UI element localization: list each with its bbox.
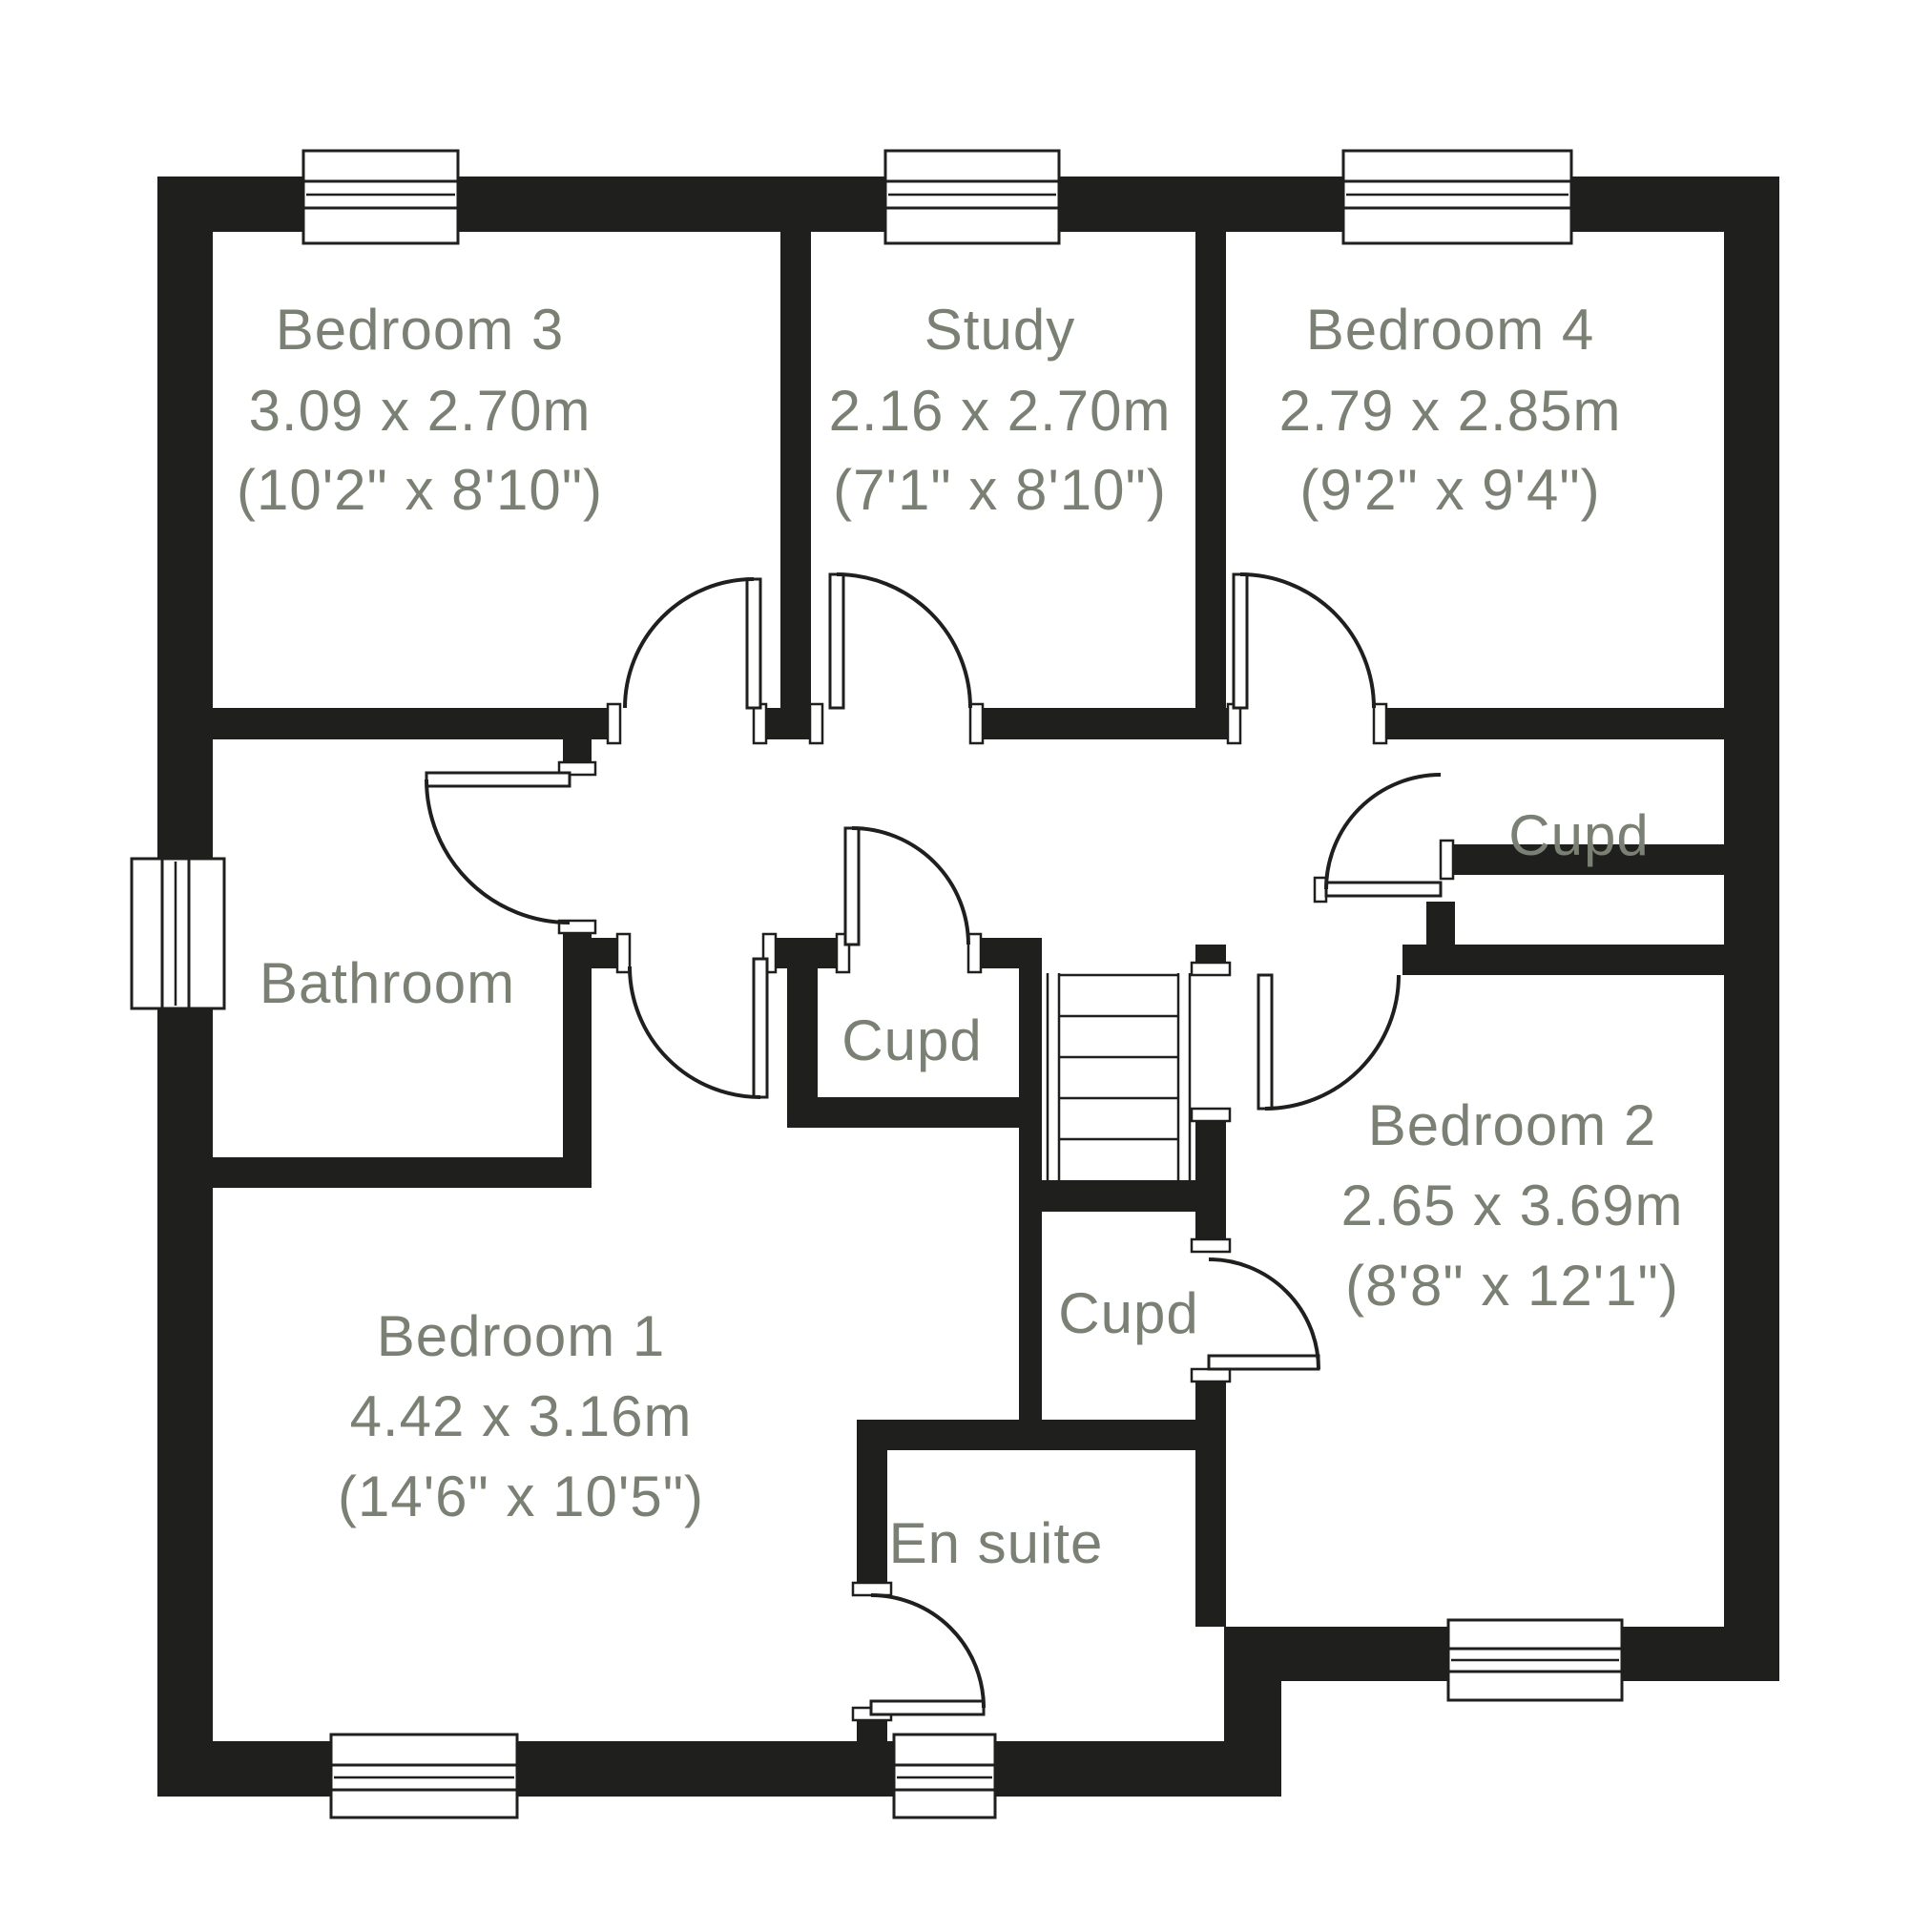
floor-plan: Bedroom 3 3.09 x 2.70m (10'2" x 8'10") S… bbox=[0, 0, 1932, 1932]
opening-cupd-landing bbox=[849, 936, 968, 970]
study-size-metric: 2.16 x 2.70m bbox=[829, 379, 1172, 443]
bedroom1-size-imperial: (14'6" x 10'5") bbox=[338, 1465, 704, 1528]
bedroom3-size-imperial: (10'2" x 8'10") bbox=[237, 458, 603, 522]
wall-bed3-study bbox=[780, 232, 811, 739]
wall-stairs-bottom bbox=[1019, 1180, 1226, 1212]
bedroom3-label: Bedroom 3 bbox=[276, 298, 565, 362]
wall-bathroom-bottom bbox=[213, 1157, 592, 1188]
wall-study-bed4 bbox=[1195, 232, 1226, 739]
window-ensuite-icon bbox=[894, 1735, 995, 1818]
opening-bathroom bbox=[561, 775, 593, 921]
study-size-imperial: (7'1" x 8'10") bbox=[833, 458, 1167, 522]
bedroom4-size-metric: 2.79 x 2.85m bbox=[1279, 379, 1622, 443]
wall-step-connector bbox=[1224, 1627, 1281, 1797]
cupd-under-stairs-label: Cupd bbox=[1058, 1281, 1198, 1345]
bedroom2-label: Bedroom 2 bbox=[1368, 1093, 1657, 1157]
wall-cupd-right-stub bbox=[1426, 902, 1455, 945]
bedroom2-size-metric: 2.65 x 3.69m bbox=[1341, 1174, 1684, 1237]
opening-study bbox=[822, 706, 970, 741]
ensuite-label: En suite bbox=[889, 1511, 1104, 1575]
opening-ensuite bbox=[855, 1595, 889, 1708]
window-study-icon bbox=[885, 151, 1059, 243]
bedroom1-label: Bedroom 1 bbox=[377, 1304, 666, 1368]
door-cupd-right-icon bbox=[1315, 775, 1453, 902]
opening-bedroom2 bbox=[1194, 975, 1228, 1109]
wall-bottom-left bbox=[157, 1741, 1281, 1797]
opening-bedroom3 bbox=[620, 706, 754, 741]
wall-ensuite-top bbox=[857, 1420, 1226, 1450]
opening-bedroom4 bbox=[1240, 706, 1374, 741]
bedroom4-label: Bedroom 4 bbox=[1306, 298, 1595, 362]
wall-right bbox=[1724, 177, 1779, 1681]
bedroom2-size-imperial: (8'8" x 12'1") bbox=[1345, 1254, 1679, 1318]
cupd-right-label: Cupd bbox=[1508, 803, 1649, 867]
bedroom3-size-metric: 3.09 x 2.70m bbox=[249, 379, 592, 443]
window-bedroom4-icon bbox=[1343, 151, 1571, 243]
study-label: Study bbox=[924, 298, 1075, 362]
wall-bedroom2-top bbox=[1402, 945, 1724, 975]
staircase-icon bbox=[1048, 973, 1190, 1180]
opening-bedroom1 bbox=[630, 934, 763, 970]
cupd-landing-label: Cupd bbox=[841, 1008, 982, 1072]
bedroom1-size-metric: 4.42 x 3.16m bbox=[350, 1384, 693, 1448]
bathroom-label: Bathroom bbox=[260, 951, 515, 1015]
window-bedroom1-icon bbox=[331, 1735, 517, 1818]
window-bathroom-icon bbox=[132, 859, 224, 1008]
window-bedroom2-icon bbox=[1448, 1620, 1622, 1700]
window-bedroom3-icon bbox=[303, 151, 458, 243]
bedroom4-size-imperial: (9'2" x 9'4") bbox=[1299, 458, 1600, 522]
wall-cupd-landing-bottom bbox=[787, 1097, 1042, 1128]
wall-ensuite-right bbox=[1195, 1450, 1226, 1627]
